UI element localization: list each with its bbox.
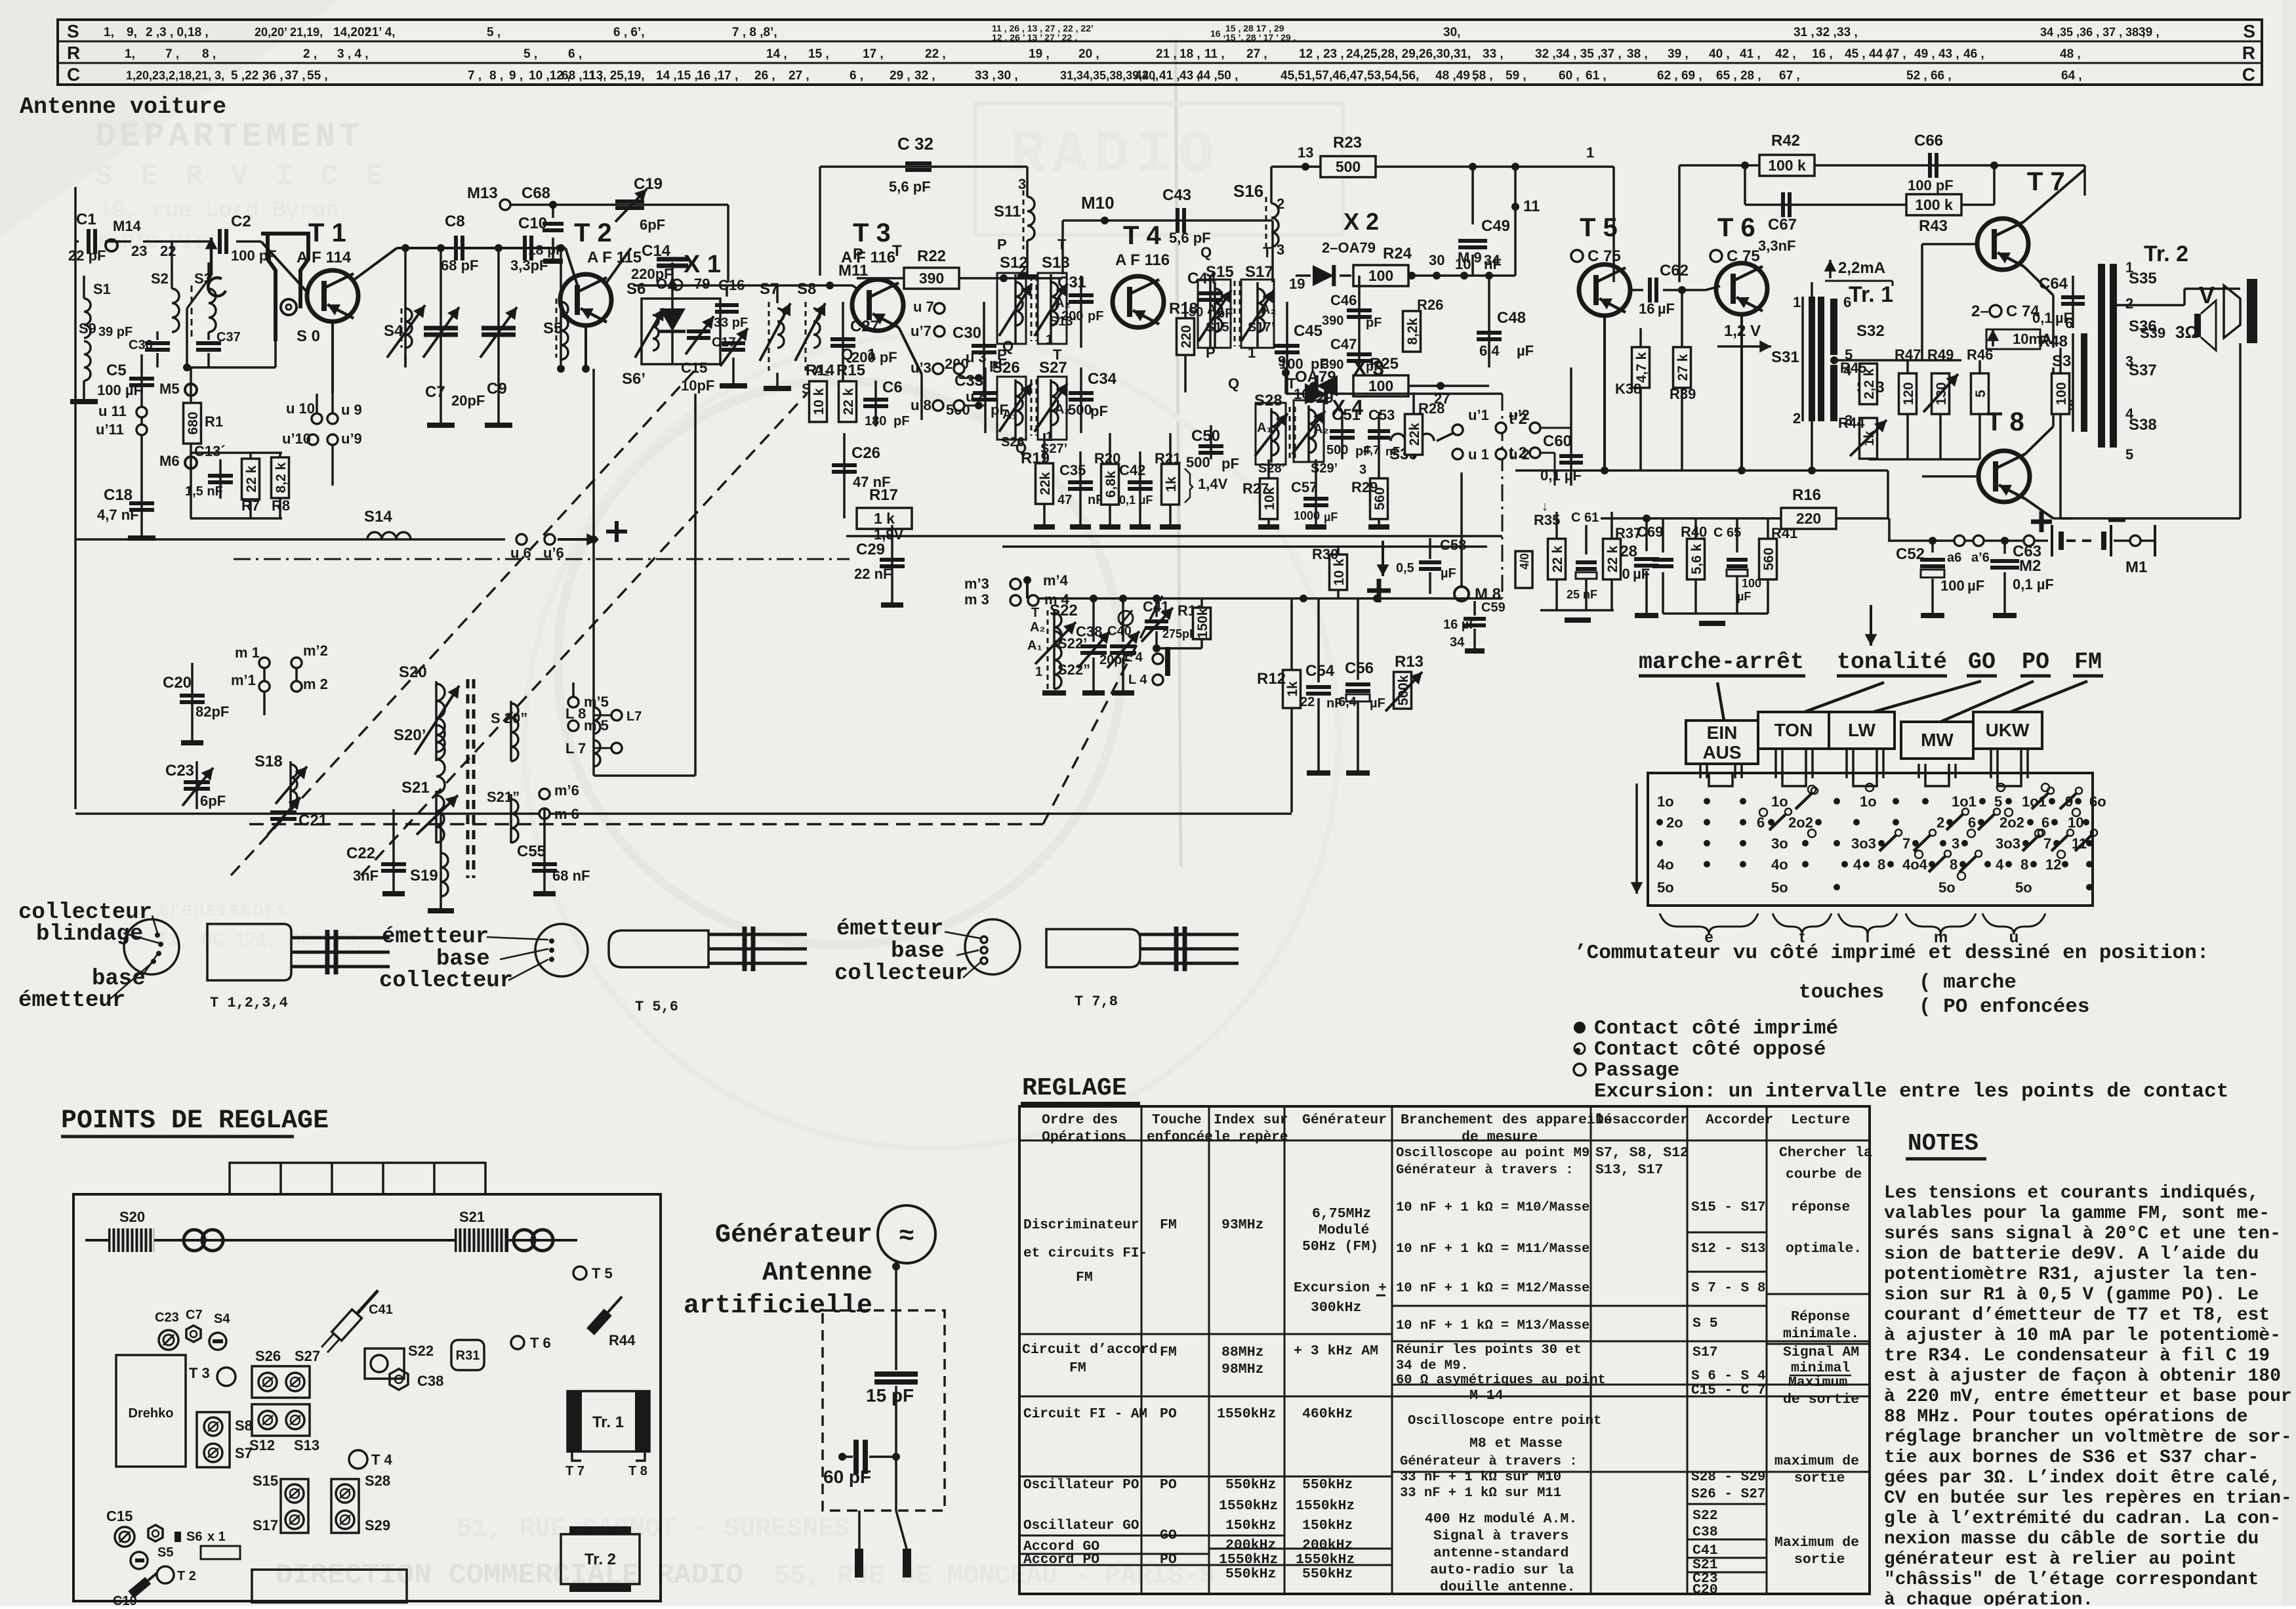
svg-text:S13, S17: S13, S17 bbox=[1595, 1162, 1663, 1178]
svg-text:2–: 2– bbox=[1971, 303, 1989, 320]
svg-text:a6: a6 bbox=[1947, 551, 1961, 565]
svg-text:68 pF: 68 pF bbox=[441, 257, 478, 274]
svg-text:le repère: le repère bbox=[1214, 1130, 1288, 1145]
svg-text:3: 3 bbox=[1359, 463, 1366, 477]
svg-text:base: base bbox=[891, 939, 945, 964]
svg-text:S15: S15 bbox=[1206, 263, 1234, 281]
svg-text:93MHz: 93MHz bbox=[1221, 1217, 1264, 1233]
svg-text:Discriminateur: Discriminateur bbox=[1023, 1218, 1139, 1233]
svg-text:8,2 k: 8,2 k bbox=[274, 462, 289, 493]
svg-text:R27: R27 bbox=[1242, 480, 1269, 497]
svg-text:R: R bbox=[2242, 43, 2255, 63]
svg-text:OA79: OA79 bbox=[1295, 368, 1336, 386]
svg-text:100: 100 bbox=[2054, 382, 2069, 405]
svg-text:S7: S7 bbox=[760, 280, 779, 298]
svg-text:R26: R26 bbox=[1417, 297, 1443, 313]
svg-text:S35: S35 bbox=[2129, 270, 2157, 287]
svg-text:12: 12 bbox=[2045, 856, 2061, 873]
svg-text:C50: C50 bbox=[1191, 427, 1220, 445]
svg-text:S11: S11 bbox=[994, 203, 1021, 220]
svg-text:40 ,: 40 , bbox=[1709, 47, 1730, 61]
svg-text:500: 500 bbox=[1186, 454, 1210, 470]
svg-text:u 6: u 6 bbox=[510, 545, 531, 561]
svg-text:500: 500 bbox=[1068, 402, 1092, 418]
svg-text:15 ’, 28 ’ 17 ’ 29 ,: 15 ’, 28 ’ 17 ’ 29 , bbox=[1225, 32, 1296, 43]
svg-text:maximum de: maximum de bbox=[1774, 1453, 1859, 1469]
svg-text:C5: C5 bbox=[106, 362, 127, 379]
svg-text:9,: 9, bbox=[127, 26, 137, 39]
svg-text:S20’: S20’ bbox=[394, 726, 426, 744]
svg-text:1550kHz: 1550kHz bbox=[1296, 1498, 1355, 1514]
svg-text:A₂: A₂ bbox=[1313, 422, 1328, 436]
svg-text:S5: S5 bbox=[157, 1545, 173, 1560]
svg-text:6,4: 6,4 bbox=[1479, 343, 1500, 359]
svg-text:enfoncée: enfoncée bbox=[1147, 1130, 1213, 1145]
svg-text:S29: S29 bbox=[1305, 389, 1334, 407]
svg-text:LW: LW bbox=[1848, 720, 1876, 740]
svg-text:C35: C35 bbox=[1059, 462, 1086, 478]
svg-text:1550kHz: 1550kHz bbox=[1219, 1498, 1278, 1514]
svg-text:M10: M10 bbox=[1081, 193, 1115, 213]
svg-text:5o: 5o bbox=[1771, 879, 1788, 896]
svg-text:27 k: 27 k bbox=[1675, 354, 1691, 381]
svg-text:220: 220 bbox=[1796, 510, 1821, 527]
svg-text:C57: C57 bbox=[1291, 479, 1317, 495]
svg-text:34 de M9.: 34 de M9. bbox=[1396, 1358, 1469, 1373]
svg-text:C38: C38 bbox=[1076, 623, 1102, 640]
svg-text:Ordre des: Ordre des bbox=[1042, 1112, 1118, 1128]
svg-text:Modulé: Modulé bbox=[1319, 1222, 1369, 1238]
svg-text:220: 220 bbox=[1179, 325, 1194, 348]
svg-text:u 11: u 11 bbox=[98, 403, 127, 419]
svg-text:C59: C59 bbox=[1481, 600, 1506, 615]
svg-text:C43: C43 bbox=[1162, 186, 1191, 204]
svg-text:4o: 4o bbox=[1657, 856, 1674, 873]
svg-text:C2: C2 bbox=[231, 213, 251, 230]
svg-text:Signal à travers: Signal à travers bbox=[1433, 1528, 1568, 1544]
svg-text:PO: PO bbox=[2022, 649, 2049, 675]
svg-text:36 ,: 36 , bbox=[262, 69, 283, 83]
svg-text:37 ,: 37 , bbox=[285, 69, 306, 83]
svg-text:6,4: 6,4 bbox=[1338, 695, 1357, 709]
svg-text:400 Hz modulé A.M.: 400 Hz modulé A.M. bbox=[1425, 1511, 1577, 1527]
svg-text:R28: R28 bbox=[1418, 400, 1445, 417]
svg-text:C14: C14 bbox=[642, 242, 671, 260]
svg-text:5 ,: 5 , bbox=[523, 47, 537, 61]
svg-text:Circuit FI - AM: Circuit FI - AM bbox=[1023, 1407, 1147, 1422]
svg-text:C58: C58 bbox=[1440, 537, 1466, 553]
svg-text:S13: S13 bbox=[294, 1437, 319, 1453]
svg-text:T 2: T 2 bbox=[574, 219, 612, 247]
svg-text:R43: R43 bbox=[1919, 217, 1948, 235]
svg-text:Tr. 1: Tr. 1 bbox=[592, 1413, 624, 1431]
svg-text:R20: R20 bbox=[1094, 450, 1120, 467]
svg-text:180: 180 bbox=[865, 414, 886, 428]
svg-text:3Ω: 3Ω bbox=[2175, 322, 2198, 342]
svg-text:C22: C22 bbox=[346, 845, 375, 862]
svg-text:PO: PO bbox=[1160, 1552, 1177, 1568]
svg-text:m 2: m 2 bbox=[303, 676, 328, 692]
svg-text:Excursion +: Excursion + bbox=[1294, 1280, 1387, 1296]
svg-text:µF: µF bbox=[1370, 696, 1385, 711]
svg-text:64 ,: 64 , bbox=[2061, 69, 2082, 83]
svg-text:C30: C30 bbox=[953, 324, 981, 342]
svg-text:5,6 pF: 5,6 pF bbox=[889, 178, 931, 195]
svg-text:u’6: u’6 bbox=[543, 545, 564, 561]
svg-text:6 , 6’,: 6 , 6’, bbox=[613, 26, 645, 39]
svg-text:22 pF: 22 pF bbox=[68, 247, 106, 264]
svg-text:T 1,2,3,4: T 1,2,3,4 bbox=[210, 995, 288, 1011]
svg-text:T 2: T 2 bbox=[177, 1569, 196, 1583]
svg-text:34 ,35 ,36 , 37 , 38 ,: 34 ,35 ,36 , 37 , 38 , bbox=[2040, 26, 2145, 39]
svg-text:100 pF: 100 pF bbox=[1908, 177, 1954, 194]
svg-text:de sortie: de sortie bbox=[1783, 1392, 1859, 1408]
svg-text:DIRECTION COMMERCIALE RADIO: DIRECTION COMMERCIALE RADIO bbox=[276, 1559, 743, 1592]
svg-text:500: 500 bbox=[1326, 443, 1348, 457]
svg-text:60 pF: 60 pF bbox=[823, 1467, 871, 1487]
svg-text:58 ,: 58 , bbox=[1472, 69, 1493, 83]
svg-text:S20: S20 bbox=[399, 663, 427, 681]
svg-text:gle à l’extrémité du cadran. L: gle à l’extrémité du cadran. La con- bbox=[1884, 1509, 2281, 1529]
svg-text:1,: 1, bbox=[125, 47, 135, 61]
svg-text:C41: C41 bbox=[369, 1303, 393, 1317]
svg-text:1: 1 bbox=[1046, 333, 1053, 347]
svg-text:M14: M14 bbox=[113, 218, 142, 234]
svg-text:19: 19 bbox=[1289, 276, 1305, 292]
svg-text:C53: C53 bbox=[1368, 407, 1395, 423]
svg-text:C: C bbox=[67, 64, 80, 85]
svg-text:50Hz (FM): 50Hz (FM) bbox=[1302, 1239, 1378, 1255]
svg-text:C34: C34 bbox=[1088, 370, 1117, 388]
svg-text:67 ,: 67 , bbox=[1779, 69, 1800, 83]
svg-text:S22: S22 bbox=[408, 1343, 434, 1359]
svg-text:15 ,: 15 , bbox=[808, 47, 829, 61]
svg-text:collecteur: collecteur bbox=[834, 961, 968, 986]
svg-text:R23: R23 bbox=[1333, 134, 1362, 152]
svg-text:Accord PO: Accord PO bbox=[1023, 1552, 1099, 1568]
svg-text:1,20,23,2,18,21, 3,: 1,20,23,2,18,21, 3, bbox=[126, 69, 224, 82]
svg-text:T 4: T 4 bbox=[1123, 221, 1162, 250]
svg-text:22k: 22k bbox=[1407, 423, 1422, 446]
svg-text:m 3: m 3 bbox=[964, 591, 989, 608]
svg-text:1o1: 1o1 bbox=[1952, 793, 1977, 810]
svg-text:à 220 mV, entre émetteur et ba: à 220 mV, entre émetteur et base pour bbox=[1884, 1387, 2292, 1407]
svg-text:S15 - S17: S15 - S17 bbox=[1691, 1200, 1765, 1215]
svg-text:Antenne voiture: Antenne voiture bbox=[20, 94, 226, 120]
svg-text:R49: R49 bbox=[1927, 346, 1954, 363]
svg-text:1o: 1o bbox=[1657, 793, 1674, 810]
svg-text:39 ,: 39 , bbox=[1668, 47, 1689, 61]
svg-text:16 µF: 16 µF bbox=[1443, 617, 1477, 632]
svg-text:u’7: u’7 bbox=[911, 323, 932, 339]
svg-text:pF: pF bbox=[893, 414, 909, 428]
svg-text:150kHz: 150kHz bbox=[1225, 1518, 1276, 1534]
svg-text:courant d’émetteur de T7 et T8: courant d’émetteur de T7 et T8, est bbox=[1884, 1305, 2270, 1326]
svg-text:4/0: 4/0 bbox=[1518, 553, 1531, 570]
svg-text:pF: pF bbox=[991, 402, 1008, 418]
svg-text:41 ,: 41 , bbox=[1740, 47, 1761, 61]
svg-text:R21: R21 bbox=[1155, 450, 1181, 467]
svg-text:Réunir les points 30 et: Réunir les points 30 et bbox=[1396, 1343, 1582, 1358]
svg-text:S37: S37 bbox=[2129, 362, 2157, 379]
svg-text:61 ,: 61 , bbox=[1586, 69, 1607, 83]
svg-text:POINTS DE REGLAGE: POINTS DE REGLAGE bbox=[61, 1106, 329, 1136]
svg-text:Oscilloscope entre point: Oscilloscope entre point bbox=[1408, 1413, 1601, 1429]
svg-text:T 4: T 4 bbox=[371, 1452, 393, 1468]
svg-text:Circuit d’accord: Circuit d’accord bbox=[1022, 1342, 1157, 1358]
svg-text:T 3: T 3 bbox=[853, 219, 891, 247]
svg-text:500: 500 bbox=[1336, 158, 1361, 175]
svg-text:u’9: u’9 bbox=[341, 430, 362, 447]
svg-text:X 1: X 1 bbox=[684, 251, 721, 278]
svg-text:10pF: 10pF bbox=[681, 377, 714, 394]
svg-text:+ 3 kHz AM: + 3 kHz AM bbox=[1294, 1343, 1378, 1359]
svg-text:GO: GO bbox=[1160, 1528, 1177, 1543]
svg-text:R22: R22 bbox=[917, 247, 946, 265]
svg-text:S28 - S29: S28 - S29 bbox=[1691, 1470, 1765, 1485]
svg-text:FM: FM bbox=[1160, 1345, 1177, 1360]
svg-text:S2: S2 bbox=[151, 270, 169, 287]
svg-text:C64: C64 bbox=[2039, 275, 2068, 293]
svg-text:douille antenne.: douille antenne. bbox=[1440, 1579, 1575, 1595]
svg-text:T 5: T 5 bbox=[1580, 213, 1618, 242]
svg-text:u 1: u 1 bbox=[1468, 446, 1489, 463]
svg-text:Lecture: Lecture bbox=[1791, 1112, 1850, 1128]
svg-text:C19: C19 bbox=[113, 1594, 137, 1606]
svg-text:23: 23 bbox=[131, 243, 147, 259]
svg-text:C52: C52 bbox=[1896, 545, 1925, 563]
svg-text:9 ,: 9 , bbox=[509, 69, 523, 83]
svg-text:33 pF: 33 pF bbox=[714, 316, 748, 330]
svg-text:m’2: m’2 bbox=[303, 642, 328, 659]
svg-text:A₂: A₂ bbox=[1055, 296, 1070, 310]
svg-text:275pF: 275pF bbox=[1162, 627, 1197, 640]
svg-text:24,25,28, 29,26,30,31,: 24,25,28, 29,26,30,31, bbox=[1346, 47, 1471, 61]
svg-text:FM: FM bbox=[1076, 1270, 1093, 1285]
svg-text:S39: S39 bbox=[2140, 325, 2165, 341]
svg-text:TON: TON bbox=[1774, 720, 1813, 740]
svg-text:T 1: T 1 bbox=[308, 219, 346, 247]
svg-text:C21: C21 bbox=[298, 812, 327, 829]
svg-text:R1: R1 bbox=[205, 413, 223, 430]
svg-text:u’11: u’11 bbox=[96, 421, 124, 438]
svg-text:S E R V I C E: S E R V I C E bbox=[95, 160, 388, 193]
svg-text:NOTES: NOTES bbox=[1908, 1130, 1978, 1157]
svg-text:22: 22 bbox=[1300, 695, 1315, 709]
svg-text:≈: ≈ bbox=[899, 1221, 914, 1249]
svg-text:59 ,: 59 , bbox=[1506, 69, 1527, 83]
svg-text:Opérations: Opérations bbox=[1042, 1129, 1126, 1145]
svg-text:200kHz: 200kHz bbox=[1302, 1537, 1353, 1553]
svg-text:C15 - C 7: C15 - C 7 bbox=[1691, 1383, 1765, 1398]
svg-text:C7: C7 bbox=[186, 1308, 203, 1322]
svg-text:100: 100 bbox=[1368, 267, 1393, 284]
svg-text:pF: pF bbox=[1221, 455, 1239, 472]
svg-text:u 3: u 3 bbox=[966, 349, 987, 366]
svg-text:S: S bbox=[2243, 21, 2255, 41]
svg-text:S21”: S21” bbox=[487, 789, 520, 805]
svg-text:C48: C48 bbox=[1497, 309, 1526, 327]
svg-text:( marche: ( marche bbox=[1919, 971, 2017, 994]
svg-text:T 6: T 6 bbox=[1717, 213, 1755, 242]
svg-text:M6: M6 bbox=[159, 453, 180, 469]
svg-text:T: T bbox=[1287, 375, 1296, 392]
svg-text:7 , 8 ,8’,: 7 , 8 ,8’, bbox=[732, 26, 777, 39]
svg-text:Oscilloscope au point M9: Oscilloscope au point M9 bbox=[1396, 1146, 1589, 1161]
svg-text:6pF: 6pF bbox=[200, 793, 226, 809]
svg-text:120: 120 bbox=[1901, 382, 1916, 405]
svg-text:µF: µF bbox=[1441, 566, 1456, 581]
svg-text:µF: µF bbox=[1517, 343, 1534, 359]
svg-text:PO: PO bbox=[1160, 1477, 1177, 1493]
svg-text:C16: C16 bbox=[718, 277, 745, 293]
svg-text:6: 6 bbox=[1843, 294, 1851, 310]
svg-text:Touche: Touche bbox=[1152, 1113, 1202, 1128]
svg-text:C20: C20 bbox=[163, 674, 192, 692]
svg-text:200: 200 bbox=[1061, 309, 1083, 324]
svg-text:11: 11 bbox=[1523, 198, 1540, 215]
svg-text:R16: R16 bbox=[1792, 486, 1821, 504]
svg-text:3 , 4 ,: 3 , 4 , bbox=[337, 47, 369, 61]
svg-text:55, RUE DE MONCEAU - PARIS-8: 55, RUE DE MONCEAU - PARIS-8 bbox=[774, 1562, 1215, 1591]
svg-text:Générateur à travers :: Générateur à travers : bbox=[1396, 1163, 1574, 1178]
svg-text:R45: R45 bbox=[1840, 360, 1866, 376]
svg-text:tonalité: tonalité bbox=[1837, 649, 1947, 675]
svg-text:22: 22 bbox=[160, 243, 176, 259]
svg-text:x 1: x 1 bbox=[207, 1530, 226, 1544]
svg-text:u’8: u’8 bbox=[911, 397, 932, 413]
svg-text:S 20”: S 20” bbox=[491, 710, 527, 726]
svg-text:2o2: 2o2 bbox=[1788, 814, 1813, 831]
svg-text:S4: S4 bbox=[214, 1312, 230, 1326]
svg-text:Oscillateur PO: Oscillateur PO bbox=[1023, 1478, 1139, 1493]
svg-text:PO: PO bbox=[1160, 1406, 1177, 1422]
svg-text:5,6 k: 5,6 k bbox=[1689, 543, 1704, 574]
svg-text:C31: C31 bbox=[1057, 274, 1086, 291]
svg-text:m 1: m 1 bbox=[235, 644, 260, 661]
svg-text:37 ,: 37 , bbox=[1601, 47, 1622, 61]
svg-text:et circuits FI-: et circuits FI- bbox=[1023, 1246, 1147, 1261]
svg-text:GO: GO bbox=[1968, 649, 1996, 675]
svg-text:valables pour la gamme FM, son: valables pour la gamme FM, sont me- bbox=[1884, 1203, 2270, 1224]
svg-text:33 nF + 1 kΩ sur M10: 33 nF + 1 kΩ sur M10 bbox=[1400, 1470, 1561, 1485]
svg-text:antenne-standard: antenne-standard bbox=[1433, 1545, 1568, 1561]
svg-text:m’6: m’6 bbox=[554, 782, 579, 799]
svg-text:Tr. 2: Tr. 2 bbox=[584, 1551, 616, 1568]
svg-text:10 nF + 1 kΩ = M13/Masse: 10 nF + 1 kΩ = M13/Masse bbox=[1396, 1318, 1589, 1333]
svg-text:33 ,: 33 , bbox=[975, 69, 996, 83]
svg-text:680: 680 bbox=[186, 411, 201, 434]
svg-text:A₁: A₁ bbox=[1027, 638, 1042, 653]
svg-text:1000: 1000 bbox=[1294, 509, 1320, 522]
svg-text:RADIO: RADIO bbox=[1010, 122, 1220, 189]
svg-text:M13: M13 bbox=[467, 184, 498, 202]
svg-text:15 pF: 15 pF bbox=[866, 1385, 914, 1406]
svg-text:T 5: T 5 bbox=[592, 1265, 613, 1282]
svg-text:16 ,17 ,: 16 ,17 , bbox=[697, 69, 738, 83]
svg-text:22 k: 22 k bbox=[841, 388, 856, 415]
svg-text:C1: C1 bbox=[76, 211, 96, 228]
svg-text:2: 2 bbox=[1793, 410, 1801, 427]
svg-text:S 0: S 0 bbox=[297, 327, 320, 345]
svg-text:C67: C67 bbox=[1768, 216, 1797, 234]
svg-text:C49: C49 bbox=[1481, 217, 1510, 235]
svg-text:34: 34 bbox=[1450, 635, 1465, 650]
svg-text:S27: S27 bbox=[295, 1348, 320, 1364]
svg-text:S12: S12 bbox=[249, 1437, 275, 1453]
svg-text:C37: C37 bbox=[216, 330, 241, 345]
svg-text:P: P bbox=[997, 236, 1007, 253]
svg-text:L7: L7 bbox=[626, 709, 642, 724]
svg-text:22 k: 22 k bbox=[1605, 545, 1620, 572]
svg-text:C15: C15 bbox=[681, 360, 707, 376]
svg-text:79: 79 bbox=[694, 276, 710, 292]
svg-text:S1: S1 bbox=[93, 281, 111, 297]
svg-text:M8 et Masse: M8 et Masse bbox=[1469, 1436, 1563, 1452]
svg-text:réglage brancher un voltmètre: réglage brancher un voltmètre de sor- bbox=[1884, 1427, 2292, 1448]
svg-text:S13: S13 bbox=[1042, 254, 1070, 272]
svg-text:µF: µF bbox=[1737, 590, 1751, 603]
svg-text:sion sur R1 à 0,5 V (gamme PO): sion sur R1 à 0,5 V (gamme PO). Le bbox=[1884, 1285, 2259, 1305]
svg-text:68 nF: 68 nF bbox=[552, 867, 590, 884]
svg-text:auto-radio sur la: auto-radio sur la bbox=[1430, 1562, 1574, 1578]
svg-text:6: 6 bbox=[1968, 814, 1976, 831]
svg-text:C17: C17 bbox=[712, 335, 736, 350]
svg-text:FM: FM bbox=[1160, 1217, 1177, 1233]
svg-text:S7, S8, S12: S7, S8, S12 bbox=[1595, 1145, 1689, 1161]
svg-text:10 nF + 1 kΩ = M10/Masse: 10 nF + 1 kΩ = M10/Masse bbox=[1396, 1200, 1589, 1215]
svg-text:est à ajuster de façon à obten: est à ajuster de façon à obtenir 180 bbox=[1884, 1366, 2281, 1387]
svg-text:Q: Q bbox=[1200, 244, 1212, 261]
svg-text:1,: 1, bbox=[104, 26, 114, 39]
svg-text:Q: Q bbox=[1228, 375, 1239, 392]
svg-text:artificielle: artificielle bbox=[684, 1291, 872, 1321]
svg-text:550kHz: 550kHz bbox=[1302, 1566, 1353, 1582]
svg-text:10 k: 10 k bbox=[1332, 558, 1347, 585]
svg-text:Maximum: Maximum bbox=[1788, 1375, 1847, 1390]
svg-text:’Commutateur vu côté imprimé e: ’Commutateur vu côté imprimé et dessiné … bbox=[1574, 942, 2209, 965]
svg-text:"châssis" de l’étage correspon: "châssis" de l’étage correspondant bbox=[1884, 1570, 2259, 1590]
svg-text:S8: S8 bbox=[797, 280, 816, 298]
svg-text:R41: R41 bbox=[1771, 525, 1797, 541]
svg-text:Index sur: Index sur bbox=[1214, 1113, 1288, 1128]
svg-text:13: 13 bbox=[1298, 144, 1313, 161]
svg-text:29 ,: 29 , bbox=[890, 69, 911, 83]
svg-text:C62: C62 bbox=[1660, 262, 1689, 280]
svg-text:S21: S21 bbox=[459, 1209, 485, 1225]
svg-text:( PO enfoncées: ( PO enfoncées bbox=[1919, 995, 2089, 1018]
svg-text:touches: touches bbox=[1799, 981, 1884, 1004]
svg-text:R13: R13 bbox=[1395, 653, 1424, 671]
svg-text:C23: C23 bbox=[155, 1310, 179, 1325]
svg-text:C9: C9 bbox=[487, 380, 507, 398]
svg-text:550kHz: 550kHz bbox=[1225, 1566, 1276, 1582]
svg-text:optimale.: optimale. bbox=[1786, 1241, 1862, 1257]
svg-text:100 µF: 100 µF bbox=[1940, 577, 1984, 594]
svg-text:REGLAGE: REGLAGE bbox=[1022, 1074, 1127, 1102]
svg-text:6: 6 bbox=[2065, 315, 2073, 331]
svg-text:S17: S17 bbox=[1245, 263, 1273, 281]
svg-text:39 pF: 39 pF bbox=[98, 325, 133, 339]
svg-text:460kHz: 460kHz bbox=[1302, 1406, 1353, 1422]
svg-text:550kHz: 550kHz bbox=[1225, 1477, 1276, 1493]
svg-text:S12 - S13: S12 - S13 bbox=[1691, 1242, 1765, 1257]
svg-text:390: 390 bbox=[919, 270, 944, 287]
svg-text:200kHz: 200kHz bbox=[1225, 1537, 1276, 1553]
svg-text:5o: 5o bbox=[2015, 879, 2032, 896]
svg-text:32 ,: 32 , bbox=[914, 69, 935, 83]
svg-text:15 ,: 15 , bbox=[677, 69, 698, 83]
